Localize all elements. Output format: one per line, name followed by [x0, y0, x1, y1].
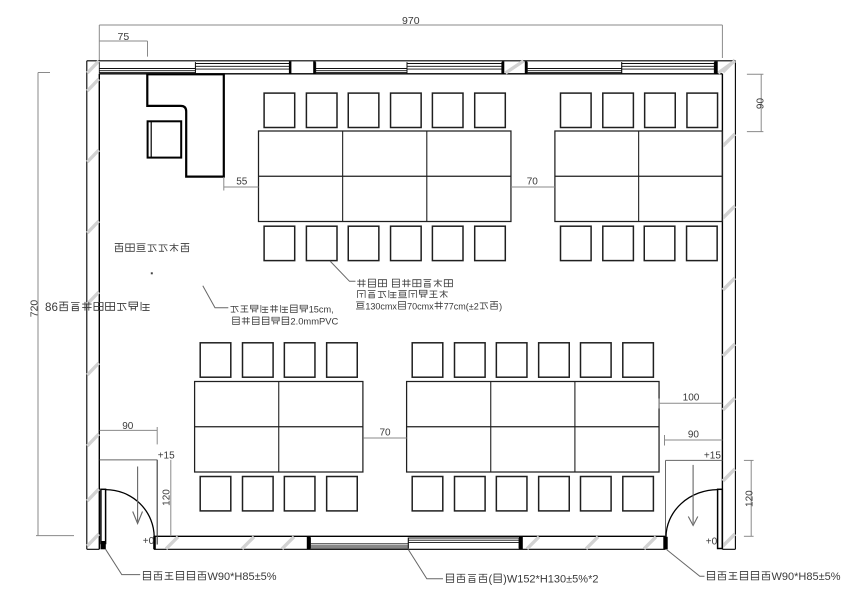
svg-text:+0: +0	[143, 536, 155, 547]
svg-text:+15: +15	[704, 450, 721, 461]
svg-text:120: 120	[162, 489, 173, 506]
svg-text:15cm,: 15cm,	[309, 305, 334, 315]
svg-text:77cm(±2: 77cm(±2	[444, 301, 479, 311]
svg-text:75: 75	[118, 31, 130, 43]
svg-text:720: 720	[29, 300, 41, 318]
svg-text:90: 90	[755, 98, 766, 110]
svg-text:70cmx: 70cmx	[407, 301, 434, 311]
svg-text:+0: +0	[706, 536, 718, 547]
svg-text:70: 70	[379, 427, 391, 438]
svg-text:70: 70	[527, 177, 539, 188]
svg-text:)W152*H130±5%*2: )W152*H130±5%*2	[503, 574, 598, 586]
svg-text:120: 120	[744, 490, 755, 507]
svg-text:+15: +15	[158, 451, 175, 462]
svg-text:970: 970	[402, 15, 420, 27]
svg-text:90: 90	[122, 421, 134, 432]
svg-text:100: 100	[683, 393, 700, 404]
svg-text:W90*H85±5%: W90*H85±5%	[772, 571, 841, 583]
svg-text:2.0mmPVC: 2.0mmPVC	[290, 316, 338, 327]
svg-text:(: (	[489, 574, 493, 586]
svg-text:): )	[499, 301, 502, 311]
svg-text:86: 86	[45, 301, 58, 314]
svg-text:55: 55	[236, 177, 248, 188]
svg-text:W90*H85±5%: W90*H85±5%	[208, 571, 277, 583]
svg-text:90: 90	[688, 430, 700, 441]
svg-text:130cmx: 130cmx	[365, 301, 397, 311]
